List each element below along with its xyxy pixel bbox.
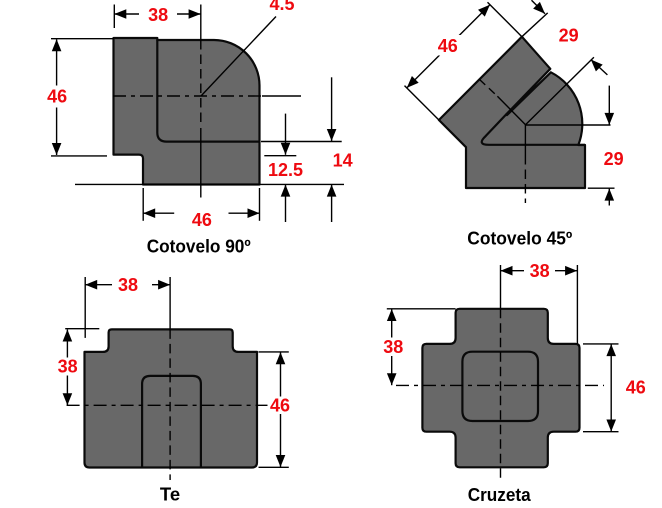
- svg-text:4.5: 4.5: [269, 0, 294, 14]
- svg-text:46: 46: [270, 395, 290, 415]
- svg-text:14: 14: [333, 151, 353, 171]
- svg-text:Te: Te: [160, 484, 180, 505]
- svg-text:38: 38: [118, 275, 138, 295]
- svg-text:46: 46: [192, 210, 212, 230]
- svg-text:38: 38: [58, 357, 78, 377]
- svg-text:38: 38: [530, 261, 550, 281]
- svg-text:46: 46: [438, 36, 458, 56]
- svg-text:Cotovelo 90º: Cotovelo 90º: [147, 236, 251, 257]
- svg-text:46: 46: [626, 378, 646, 398]
- svg-text:38: 38: [383, 337, 403, 357]
- svg-text:46: 46: [47, 87, 67, 107]
- svg-text:29: 29: [604, 149, 624, 169]
- svg-text:38: 38: [148, 5, 168, 25]
- svg-text:Cotovelo 45º: Cotovelo 45º: [467, 228, 572, 249]
- svg-text:29: 29: [559, 26, 579, 46]
- svg-text:Cruzeta: Cruzeta: [468, 484, 532, 505]
- svg-text:12.5: 12.5: [268, 160, 303, 180]
